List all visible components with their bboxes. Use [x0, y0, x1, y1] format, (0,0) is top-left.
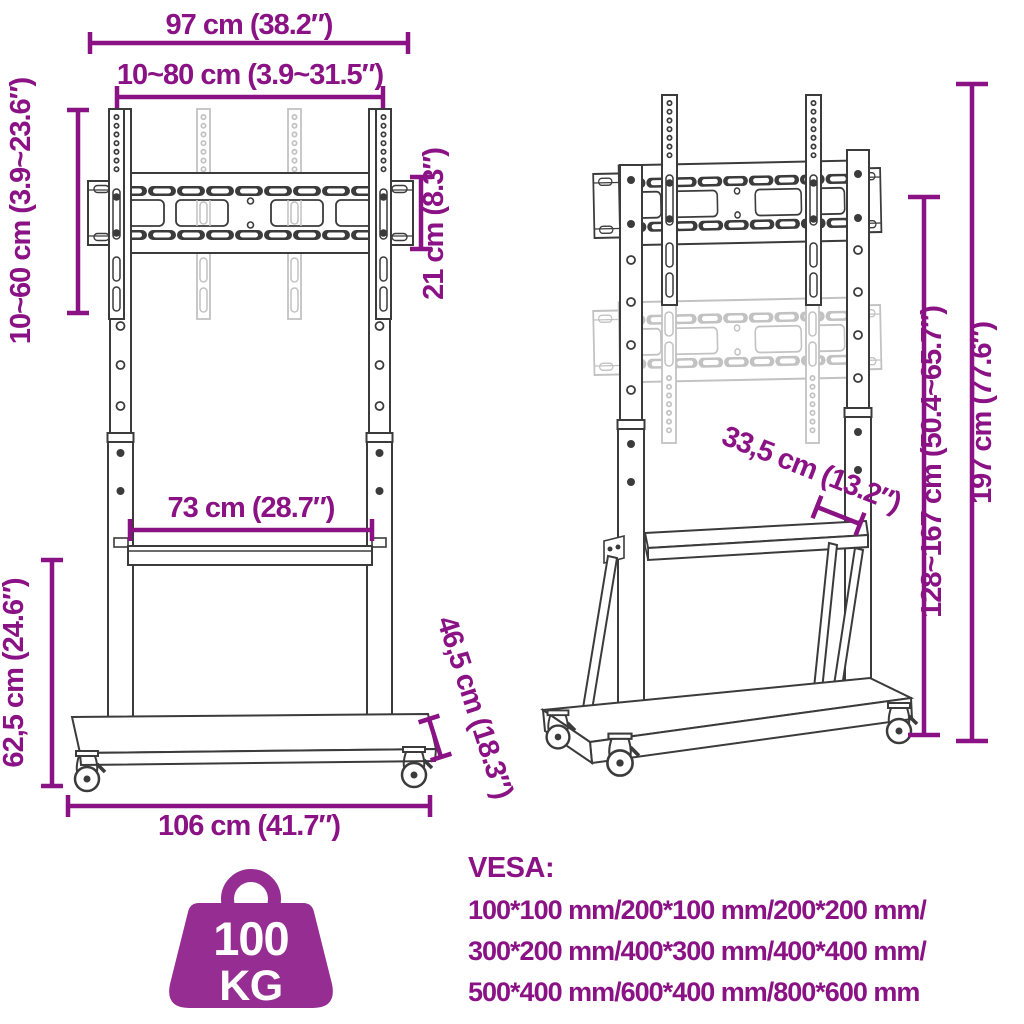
weight-value-label: 100: [213, 912, 288, 965]
front-base: [72, 714, 436, 765]
dim-shelf-width: 73 cm (28.7″): [130, 492, 372, 541]
vesa-heading: VESA:: [468, 852, 554, 884]
dim-total-height-label: 197 cm (77.6″): [966, 322, 998, 504]
dim-base-width-label: 106 cm (41.7″): [158, 810, 340, 842]
vesa-line-1: 100*100 mm/200*100 mm/200*200 mm/: [468, 895, 927, 925]
front-view-drawing: [72, 109, 436, 791]
dim-bracket-height: 21 cm (8.3″): [410, 148, 450, 300]
dim-top-width-label: 97 cm (38.2″): [166, 9, 333, 41]
front-vesa-arm-right: [376, 109, 391, 319]
front-tv-bracket-bar: [88, 173, 413, 253]
side-vesa-arm-front: [662, 95, 677, 305]
weight-unit-label: KG: [219, 962, 283, 1010]
dim-lower-section-label: 62,5 cm (24.6″): [0, 578, 30, 767]
dim-total-height: 197 cm (77.6″): [956, 84, 998, 741]
side-column-front: [618, 165, 645, 707]
side-base: [543, 678, 912, 763]
side-vesa-arm-rear: [806, 95, 821, 305]
dim-base-depth: 46,5 cm (18.3″): [419, 612, 520, 802]
dim-vesa-height-range: 10~60 cm (3.9~23.6″): [5, 77, 89, 344]
dim-column-height-label: 128~167 cm (50.4~65.7″): [916, 306, 948, 618]
dim-bracket-height-label: 21 cm (8.3″): [418, 148, 450, 300]
diagram-canvas: 97 cm (38.2″) 10~80 cm (3.9~31.5″) 10~60…: [0, 0, 1024, 1024]
dim-vesa-width-range: 10~80 cm (3.9~31.5″): [117, 59, 384, 108]
dim-shelf-width-label: 73 cm (28.7″): [168, 492, 335, 524]
dim-base-width: 106 cm (41.7″): [68, 795, 430, 842]
dim-vesa-width-label: 10~80 cm (3.9~31.5″): [117, 59, 384, 91]
tv-stand-dimension-diagram: 97 cm (38.2″) 10~80 cm (3.9~31.5″) 10~60…: [0, 0, 1024, 1024]
dim-column-height-range: 128~167 cm (50.4~65.7″): [908, 197, 948, 735]
vesa-line-2: 300*200 mm/400*300 mm/400*400 mm/: [468, 936, 927, 966]
front-vesa-arm-left: [109, 109, 124, 319]
dim-lower-section-height: 62,5 cm (24.6″): [0, 560, 63, 786]
weight-capacity-icon: 100 KG: [169, 876, 333, 1011]
front-shelf: [114, 538, 386, 565]
vesa-line-3: 500*400 mm/600*400 mm/800*600 mm: [468, 977, 919, 1007]
dim-base-depth-label: 46,5 cm (18.3″): [430, 612, 519, 802]
dim-vesa-height-label: 10~60 cm (3.9~23.6″): [5, 77, 37, 344]
vesa-info: VESA: 100*100 mm/200*100 mm/200*200 mm/ …: [468, 852, 927, 1007]
dim-top-width: 97 cm (38.2″): [90, 9, 408, 54]
